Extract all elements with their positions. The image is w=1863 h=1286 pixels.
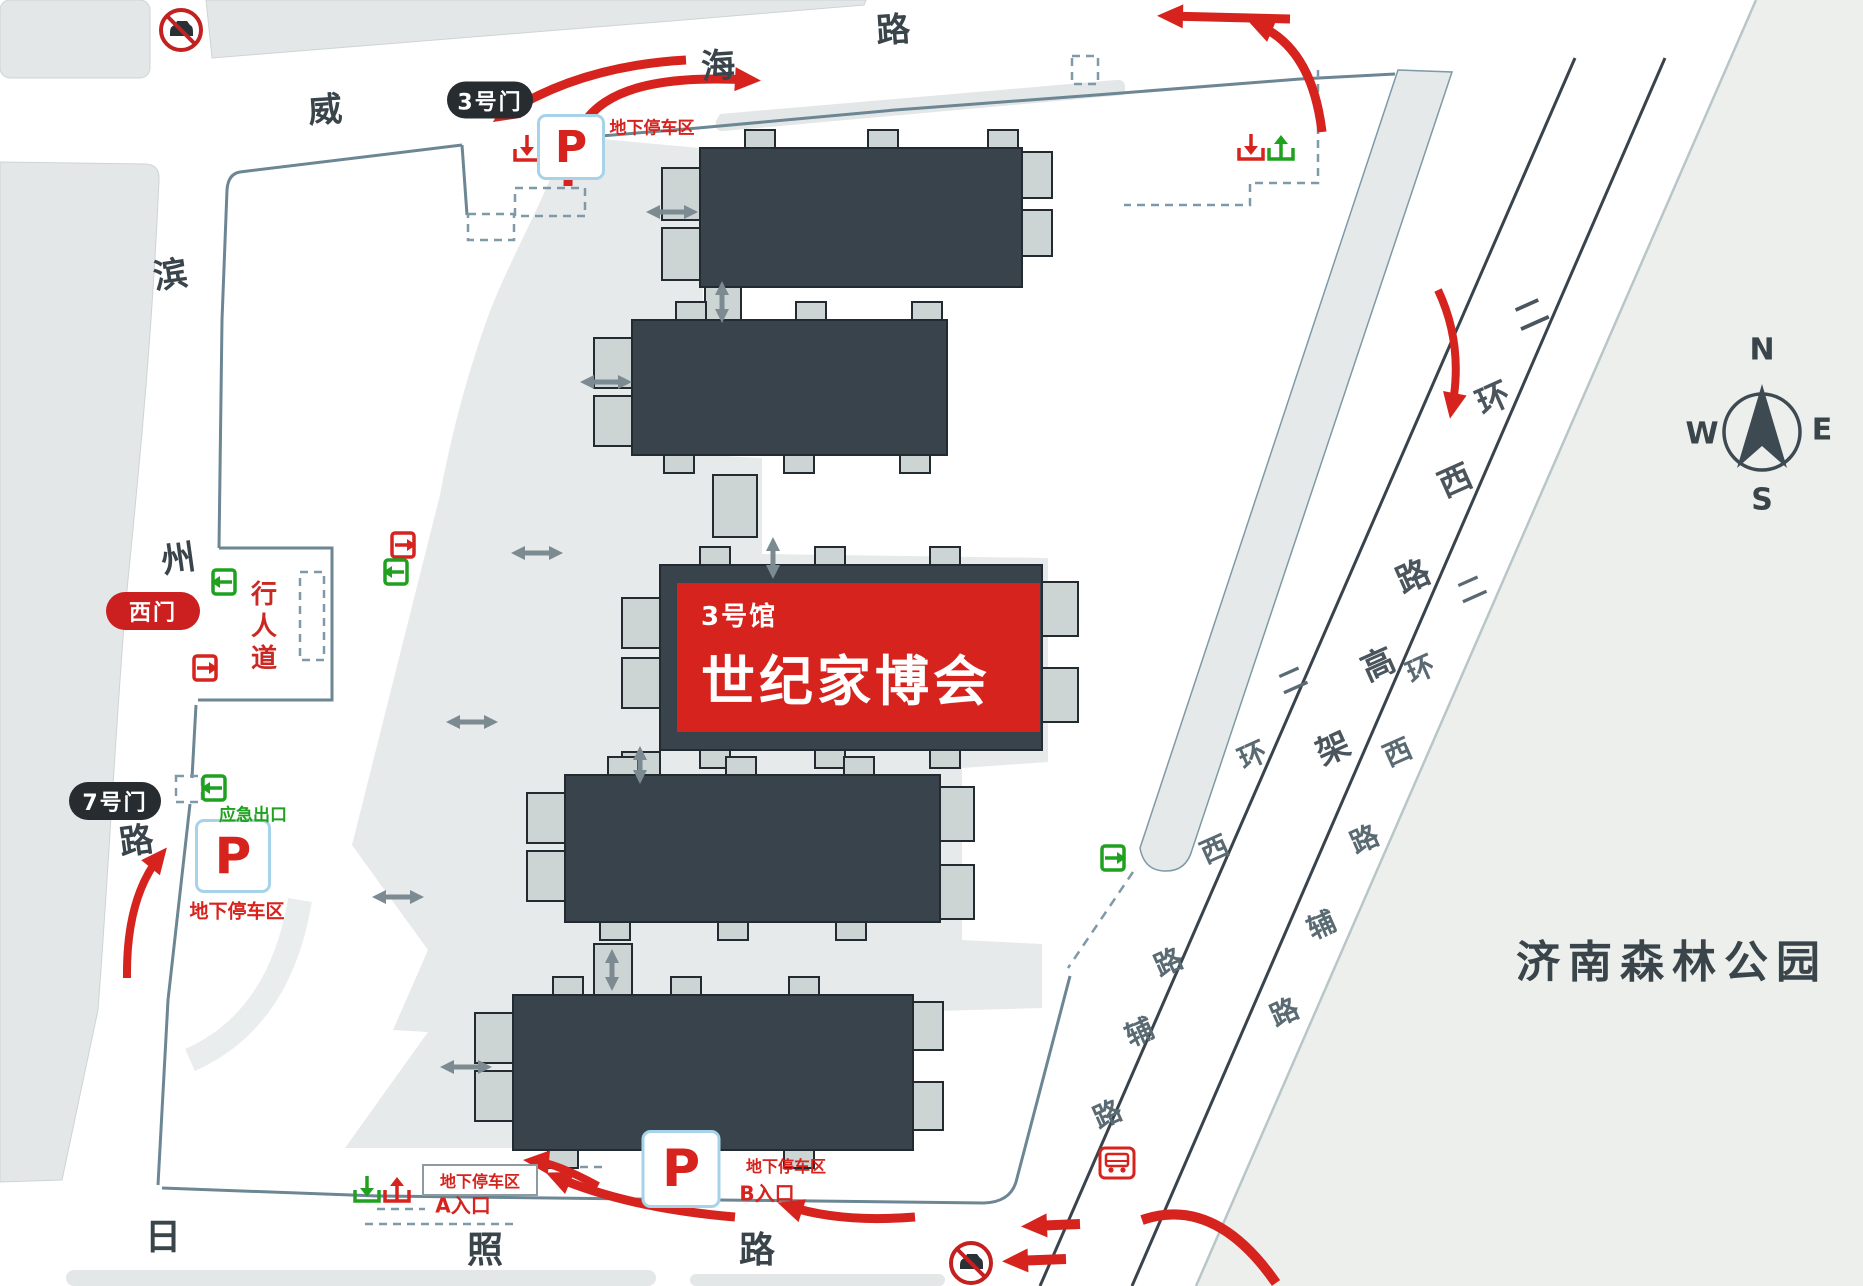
compass-south-label: S (1751, 483, 1773, 518)
road-weihai-char: 威 (306, 81, 343, 132)
emergency-exit-label: 应急出口 (219, 801, 287, 826)
underground-parking-label-west: 地下停车区 (189, 897, 284, 924)
compass-north-label: N (1749, 333, 1774, 368)
underground-parking-label-south-b: 地下停车区 (746, 1153, 826, 1177)
forest-park-label: 济南森林公园 (1516, 926, 1828, 990)
expo-title: 世纪家博会 (701, 637, 1040, 716)
garage-exit-icon (1269, 135, 1293, 159)
road-rizhao-char: 路 (739, 1221, 775, 1273)
door-entry-icon (392, 533, 416, 557)
no-car-icon (951, 1243, 991, 1283)
gate3-badge: 3号门 (447, 82, 533, 119)
venue-map: 3号馆 世纪家博会 3号门 西门 7号门 P P P 地下停车区 地下停车区 地… (0, 0, 1863, 1286)
hall-number: 3号馆 (701, 596, 1040, 633)
road-binzhou-char: 州 (158, 529, 198, 582)
hall3-banner: 3号馆 世纪家博会 (677, 583, 1040, 732)
underground-parking-label-south-a: 地下停车区 (440, 1168, 520, 1192)
door-entry-icon (1102, 846, 1126, 870)
turn-lane-marking (190, 900, 300, 1060)
forest-park-area (1196, 0, 1863, 1286)
door-exit-icon (201, 776, 225, 800)
garage-entry-icon (1239, 134, 1263, 159)
road-weihai-char: 海 (699, 37, 736, 88)
road-rizhao-char: 照 (467, 1221, 503, 1273)
underground-parking-label-north: 地下停车区 (610, 114, 695, 139)
road-binzhou-char: 路 (116, 811, 156, 864)
compass-west-label: W (1685, 417, 1718, 452)
exhibition-hall-4 (527, 757, 974, 940)
road-weihai-char: 路 (874, 1, 911, 52)
parking-sign-west: P (195, 819, 271, 893)
road-binzhou-char: 滨 (150, 245, 190, 298)
door-exit-icon (211, 570, 235, 594)
exhibition-hall-2 (594, 302, 947, 473)
door-exit-icon (383, 560, 407, 584)
compass-east-label: E (1812, 413, 1833, 448)
garage-entry-icon (515, 135, 539, 160)
entry-a-label: A入口 (435, 1190, 490, 1219)
no-car-icon (161, 10, 201, 50)
road-rizhao-char: 日 (145, 1208, 181, 1260)
parking-sign-north: P (537, 114, 605, 180)
parking-sign-south: P (642, 1130, 721, 1208)
west-gate-badge: 西门 (106, 592, 200, 630)
entry-b-label: B入口 (739, 1178, 794, 1207)
bus-stop-icon (1100, 1148, 1134, 1178)
pedestrian-walkway-label: 行人道 (244, 580, 281, 676)
door-entry-icon (194, 656, 218, 680)
exhibition-hall-1 (662, 130, 1052, 287)
